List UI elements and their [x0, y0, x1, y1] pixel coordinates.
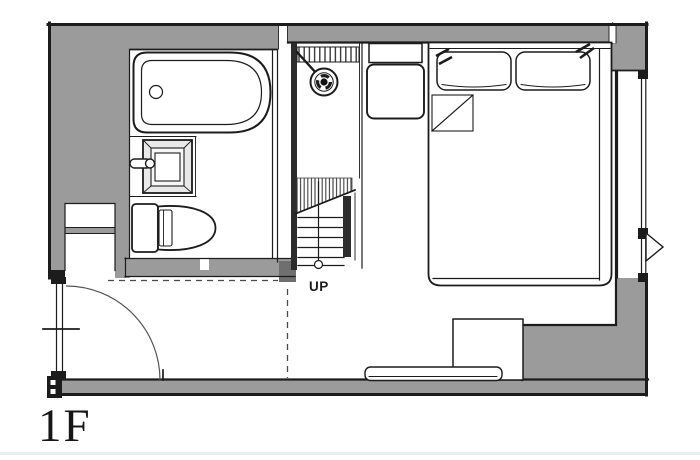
low-shelf: [365, 367, 502, 381]
top-right-slot: [609, 26, 616, 43]
shower-head-center: [320, 78, 327, 85]
floor-label: 1F: [38, 403, 92, 450]
wall-notch: [200, 258, 209, 270]
left-door-cap: [51, 277, 66, 284]
right-window-cap: [638, 273, 648, 282]
bathtub: [134, 53, 271, 133]
bathroom: [130, 53, 271, 253]
wall-bathroom-bottom: [125, 258, 295, 277]
bathroom-right-wall: [273, 50, 278, 262]
corner-cap-bottom-left: [47, 376, 62, 398]
stair-stringer-right: [343, 196, 351, 257]
shower: [291, 43, 362, 270]
sink-basin: [155, 153, 180, 181]
shower-grate-top: [297, 47, 359, 62]
nightstand: [367, 65, 424, 119]
floor-plan-page: UP 1F: [0, 0, 700, 460]
stair-start-marker: [315, 261, 323, 269]
wall-top-right-corner: [612, 23, 648, 71]
top-wall-slot: [279, 25, 288, 49]
stair-treads: [298, 218, 344, 266]
wall-top-bathroom: [130, 23, 278, 50]
floor-plan-drawing: UP: [0, 0, 700, 460]
toilet-seat-hinge: [159, 210, 172, 246]
shower-wall-bar: [291, 43, 297, 270]
stairs-up-label: UP: [309, 279, 329, 294]
cap-notch: [51, 380, 56, 385]
entry-door-leaf: [57, 284, 63, 371]
wall-cap-left: [51, 270, 65, 278]
left-door-cap: [51, 371, 66, 379]
niche-outline: [65, 204, 115, 271]
entry-door-swing-arc: [66, 286, 160, 380]
pillow-right: [516, 52, 590, 90]
toilet-tank: [132, 204, 158, 252]
right-window-glass: [642, 79, 646, 273]
casement-flag: [646, 233, 663, 261]
wall-bottom-right-mass: [522, 325, 648, 396]
nightstand-top: [369, 44, 422, 63]
cap-notch: [51, 389, 56, 394]
wall-left-strip: [49, 203, 65, 278]
wall-left-block: [49, 23, 130, 203]
page-bottom-rule: [0, 452, 700, 455]
faucet-knob: [146, 159, 155, 168]
niche-divider: [65, 227, 115, 234]
right-window-cap: [638, 71, 648, 79]
